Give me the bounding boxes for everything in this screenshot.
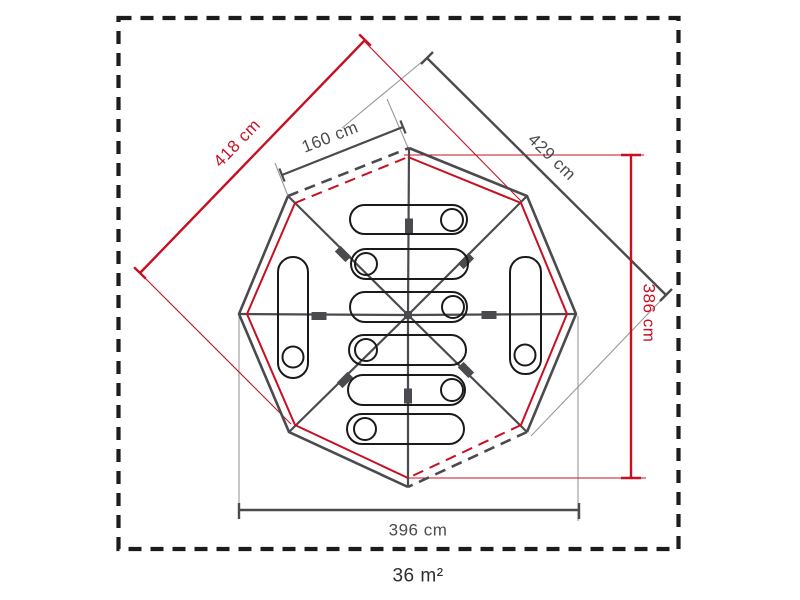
floor-area-label: 36 m² — [392, 566, 443, 587]
diagram-svg: 418 cm 160 cm 429 cm 386 cm 396 cm 36 m² — [0, 0, 800, 600]
inner-edge-left — [247, 203, 408, 478]
sleeping-bag-pillow — [355, 253, 377, 275]
sleeve-marker-south — [404, 389, 412, 404]
dimension-396-label: 396 cm — [389, 521, 448, 540]
dimension-396 — [239, 503, 579, 519]
extension-line-429-upper — [342, 56, 429, 128]
sleeping-bag-pillow — [354, 418, 376, 440]
footprint-dashed-border — [119, 18, 679, 549]
red-extension-lines — [134, 42, 646, 478]
sleeve-marker-east — [482, 311, 497, 319]
sleeping-bag-pillow — [441, 379, 463, 401]
dimension-386 — [621, 155, 641, 478]
extension-line-160-left — [275, 163, 288, 196]
extension-line-418-upper — [365, 42, 521, 201]
sleeping-bag-pillow — [441, 209, 463, 231]
dimension-160-label: 160 cm — [299, 117, 361, 156]
sleeve-marker-north — [405, 219, 413, 234]
extension-line-418-lower — [134, 267, 291, 424]
sleeping-bag-pillow — [283, 347, 304, 368]
center-hub — [404, 311, 412, 319]
sleeve-marker-west — [312, 312, 327, 320]
tent-floorplan-diagram: 418 cm 160 cm 429 cm 386 cm 396 cm 36 m² — [0, 0, 800, 600]
dimension-429-label: 429 cm — [524, 130, 579, 184]
sleeve-marker-southeast — [458, 362, 474, 378]
dimension-418-label: 418 cm — [210, 115, 264, 170]
outer-door-bottom-right — [408, 432, 527, 487]
sleeping-bag-pillow — [515, 345, 536, 366]
extension-line-160-right — [387, 99, 409, 150]
sleeve-marker-northwest — [335, 246, 351, 262]
gray-extension-lines — [239, 56, 666, 521]
dimension-386-label: 386 cm — [640, 284, 659, 343]
